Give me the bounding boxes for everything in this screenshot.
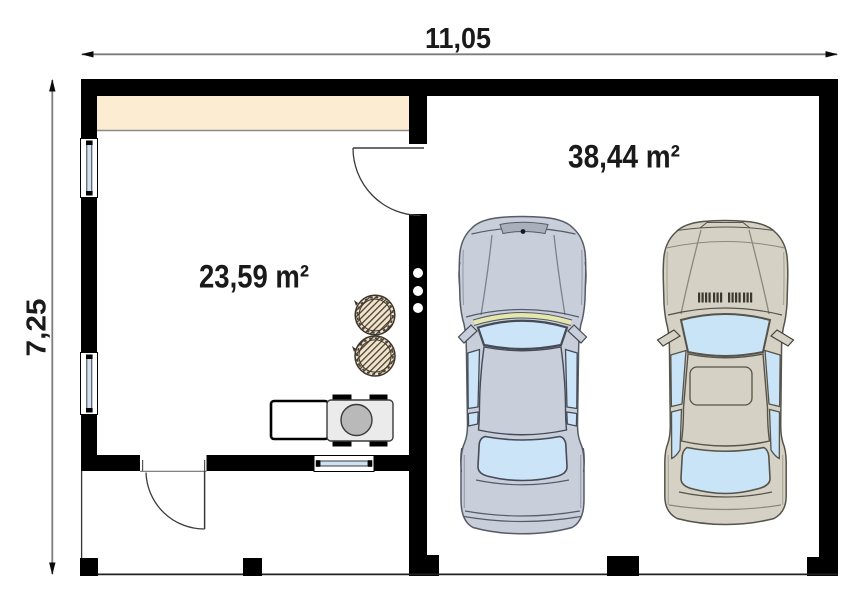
- svg-text:38,44 m²: 38,44 m²: [568, 139, 680, 175]
- svg-text:7,25: 7,25: [21, 299, 52, 357]
- svg-text:23,59 m²: 23,59 m²: [199, 259, 309, 295]
- svg-text:11,05: 11,05: [425, 23, 491, 55]
